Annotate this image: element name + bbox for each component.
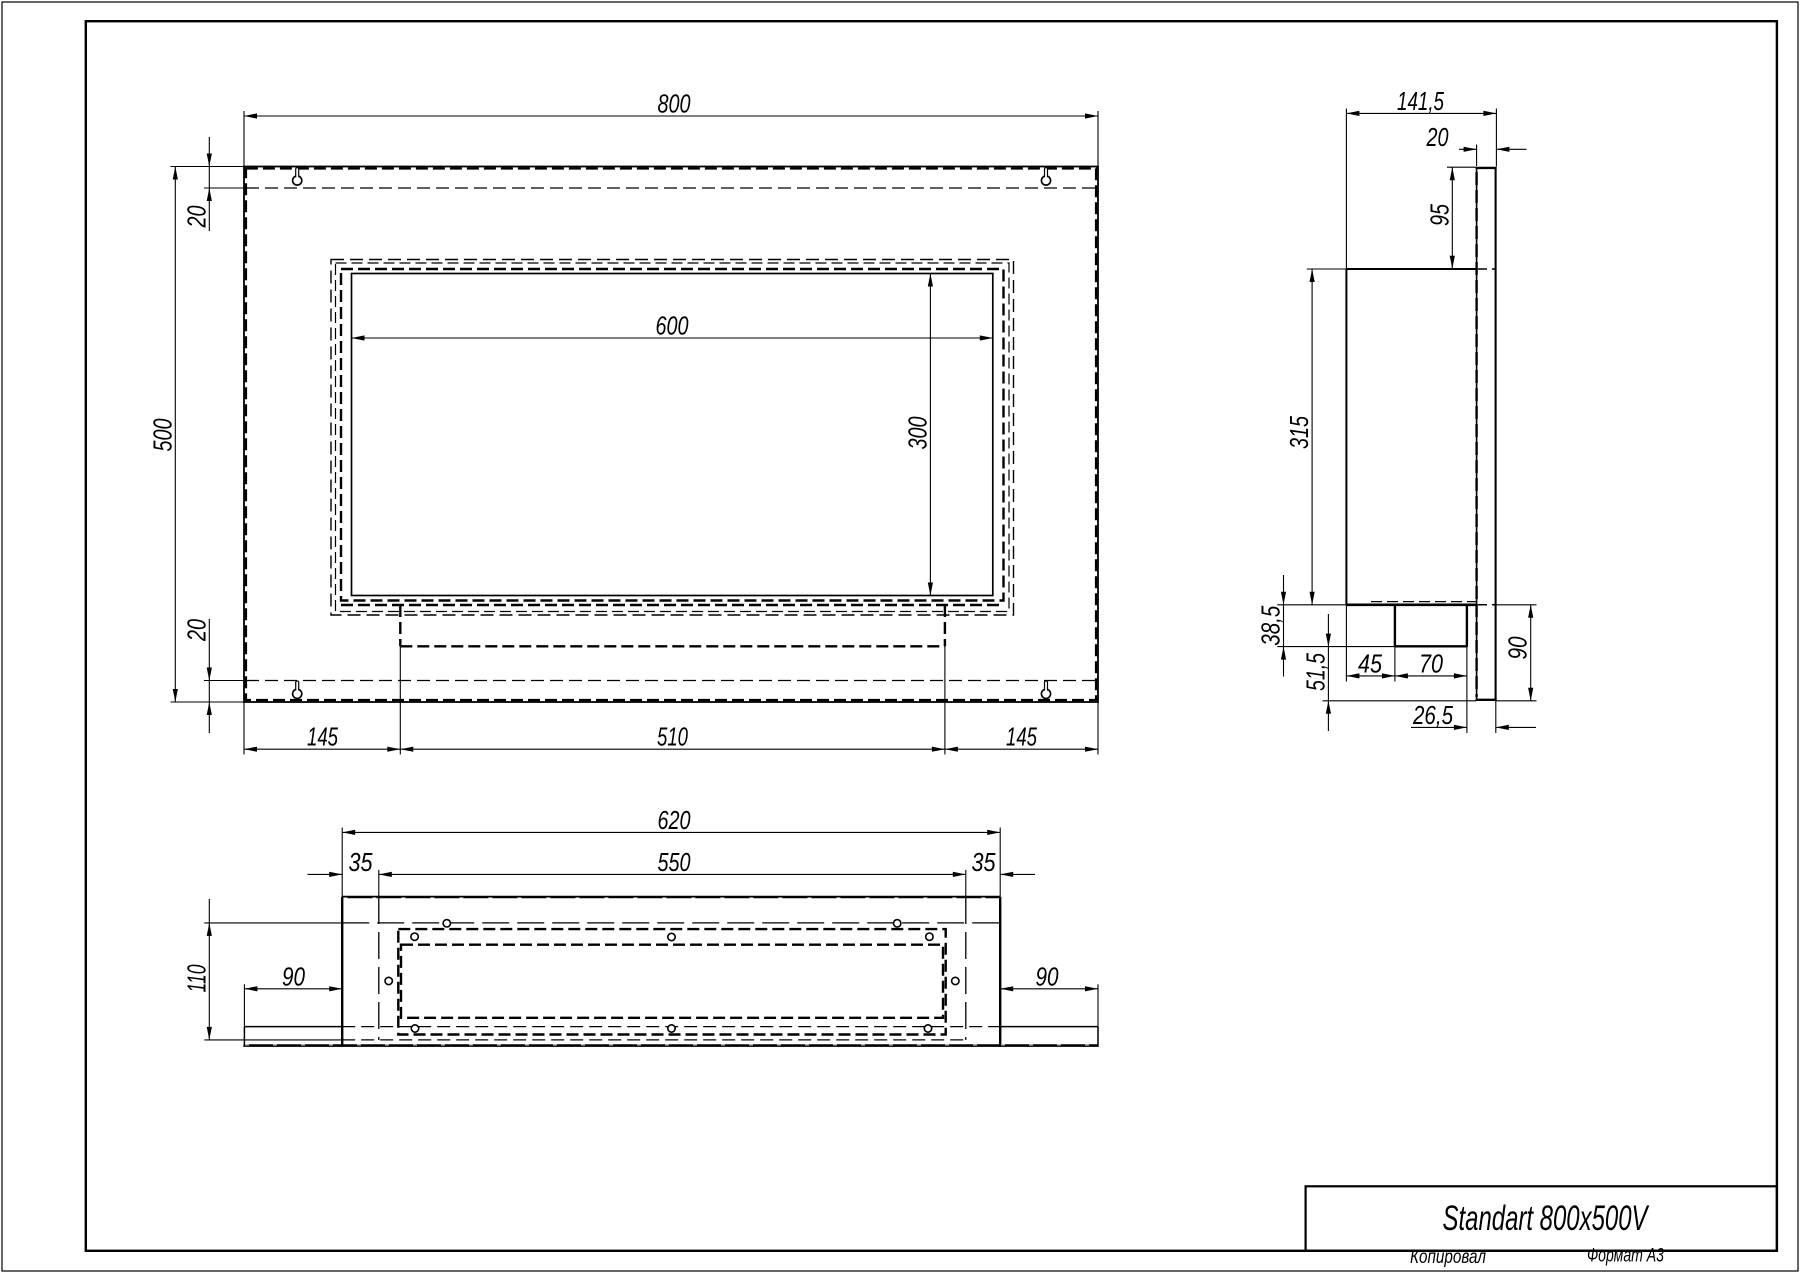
svg-text:500: 500 bbox=[147, 418, 177, 451]
svg-text:620: 620 bbox=[658, 805, 691, 835]
svg-text:20: 20 bbox=[1426, 122, 1449, 152]
svg-text:70: 70 bbox=[1419, 648, 1443, 678]
svg-text:90: 90 bbox=[1036, 961, 1059, 991]
svg-text:145: 145 bbox=[1006, 722, 1037, 752]
svg-text:26,5: 26,5 bbox=[1412, 700, 1453, 730]
svg-text:35: 35 bbox=[349, 847, 373, 877]
svg-text:800: 800 bbox=[658, 89, 691, 119]
svg-text:95: 95 bbox=[1424, 204, 1454, 226]
svg-text:315: 315 bbox=[1284, 416, 1314, 449]
svg-text:300: 300 bbox=[902, 416, 932, 449]
svg-text:600: 600 bbox=[656, 311, 689, 341]
svg-text:51,5: 51,5 bbox=[1300, 653, 1330, 691]
svg-text:550: 550 bbox=[658, 847, 691, 877]
svg-text:Формат А3: Формат А3 bbox=[1587, 1246, 1664, 1267]
svg-text:20: 20 bbox=[181, 205, 211, 228]
svg-text:35: 35 bbox=[972, 847, 996, 877]
svg-text:90: 90 bbox=[282, 961, 305, 991]
svg-text:510: 510 bbox=[657, 722, 688, 752]
svg-text:38,5: 38,5 bbox=[1256, 605, 1286, 645]
svg-text:145: 145 bbox=[307, 722, 338, 752]
svg-text:45: 45 bbox=[1358, 648, 1382, 678]
svg-text:90: 90 bbox=[1503, 636, 1533, 659]
svg-text:Standart 800x500V: Standart 800x500V bbox=[1443, 1199, 1650, 1238]
svg-text:141,5: 141,5 bbox=[1397, 86, 1444, 116]
svg-text:Копировал: Копировал bbox=[1410, 1247, 1486, 1268]
svg-text:110: 110 bbox=[181, 964, 211, 992]
svg-text:20: 20 bbox=[181, 619, 211, 642]
